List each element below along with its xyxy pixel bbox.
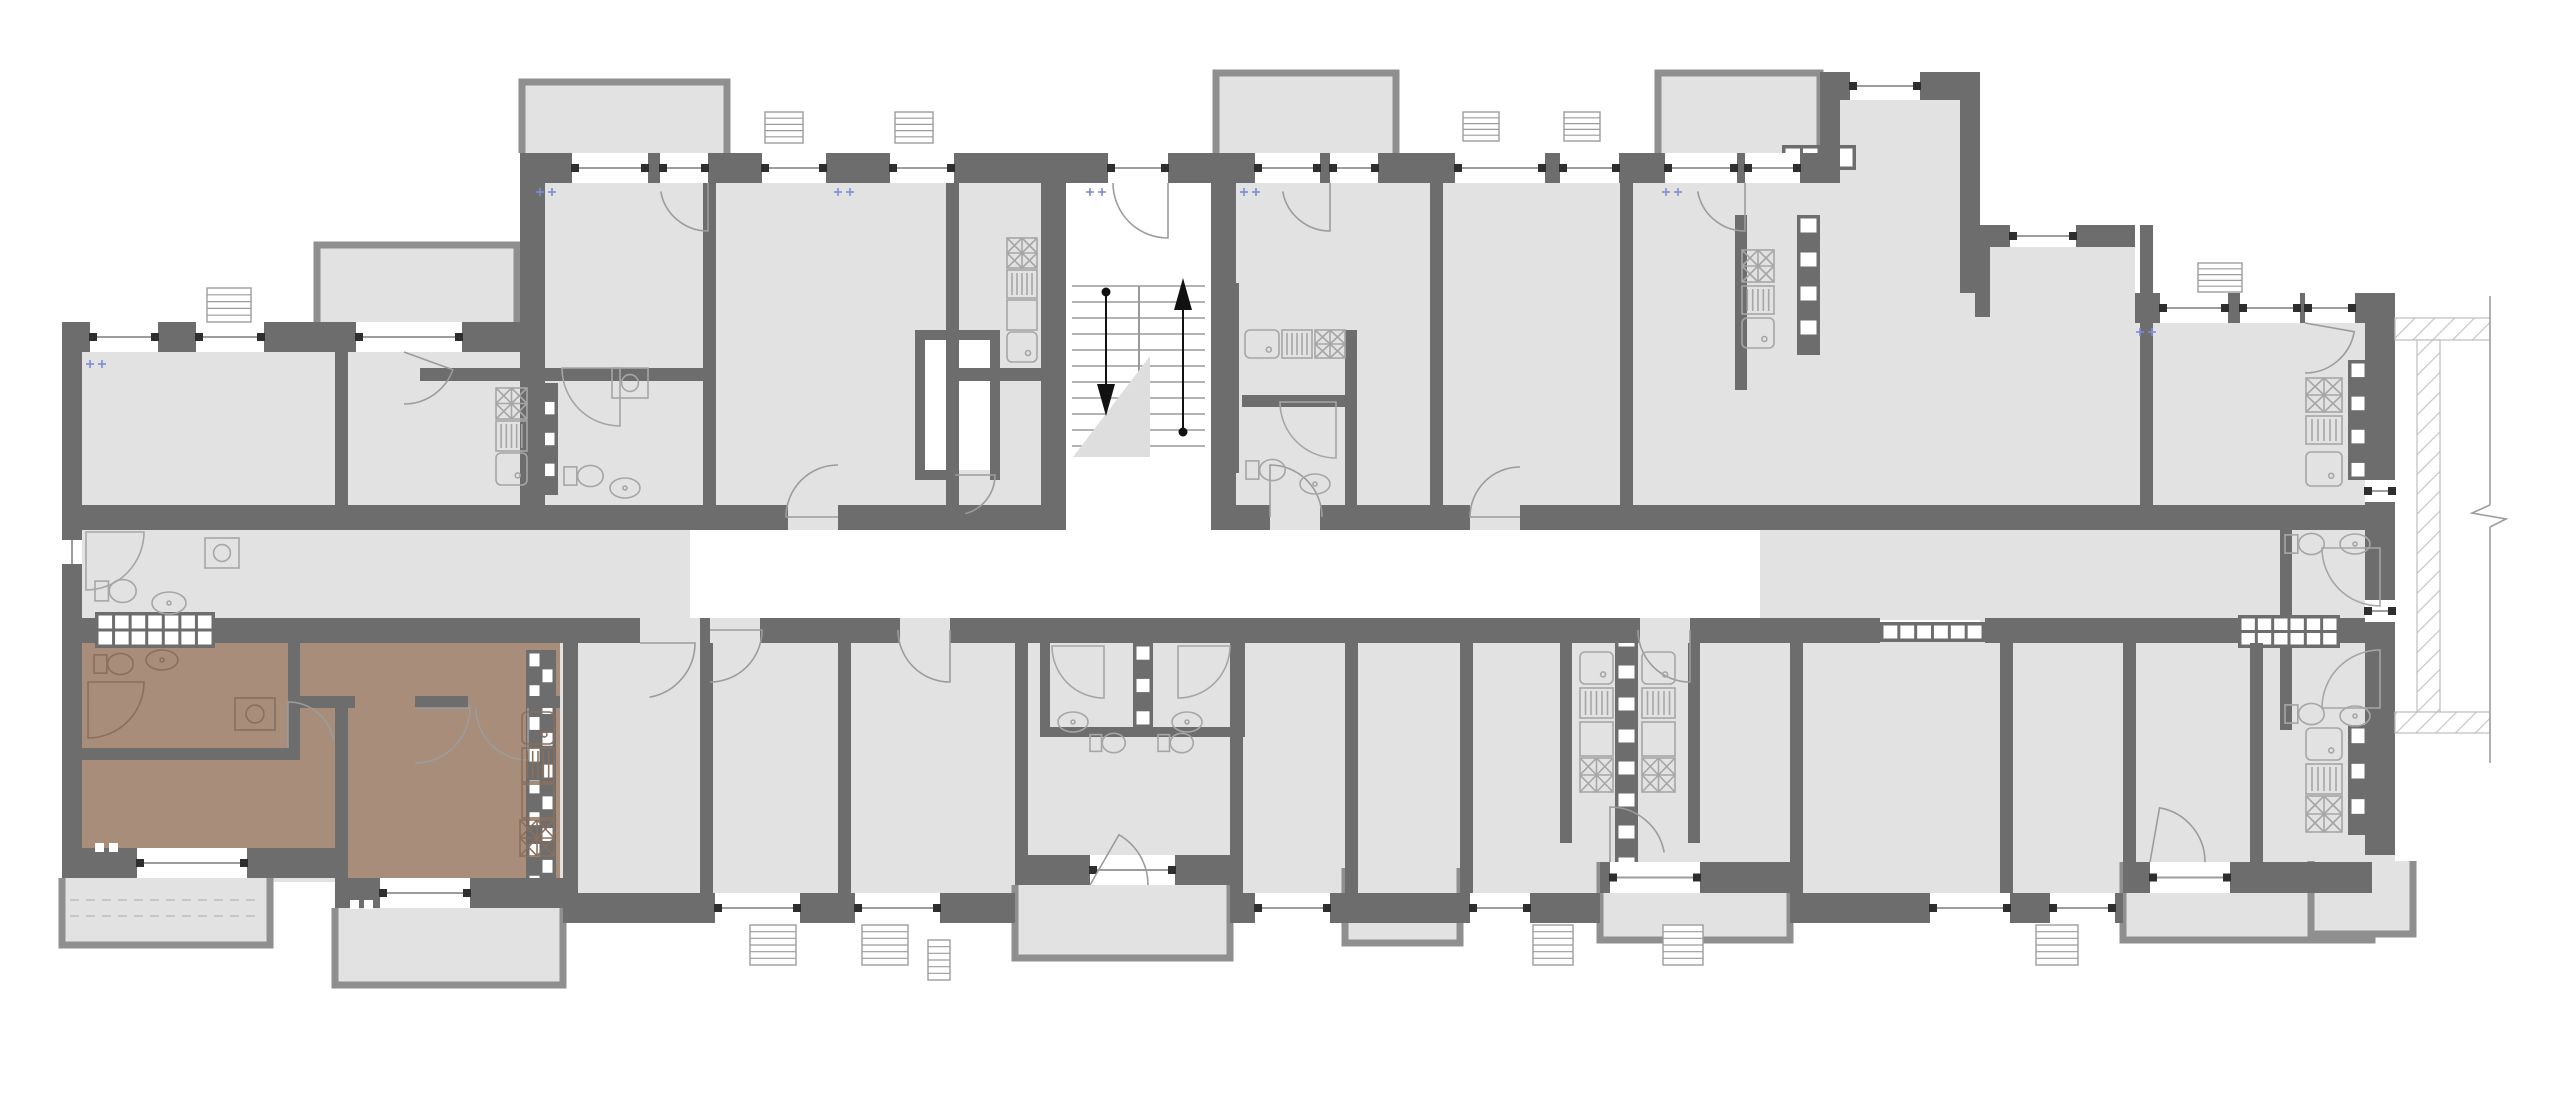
wall-segment	[2228, 293, 2240, 323]
shaft-cell	[2352, 799, 2365, 814]
shaft-cell	[148, 616, 162, 629]
shaft-cell	[115, 632, 129, 645]
balcony	[335, 908, 563, 985]
radiator-icon-outline	[2198, 263, 2242, 292]
adjacent-section-hatch	[2395, 712, 2490, 733]
window-jamb	[1469, 904, 1477, 912]
wall-segment	[1015, 643, 1028, 855]
shaft-cell	[165, 632, 179, 645]
shaft-cell	[2323, 633, 2336, 645]
wall-segment	[2000, 643, 2013, 893]
window-jamb	[2348, 304, 2356, 312]
shaft-cell	[1137, 711, 1150, 724]
balcony	[1658, 73, 1820, 153]
wall-segment	[1345, 643, 1358, 893]
wall-segment	[82, 748, 300, 760]
wall-segment	[1320, 505, 1470, 530]
window-jamb	[701, 164, 709, 172]
radiator-icon	[2198, 263, 2242, 292]
stove-icon	[1007, 238, 1037, 268]
window-jamb	[2003, 904, 2011, 912]
window-jamb	[2388, 607, 2396, 615]
wall-segment	[563, 643, 578, 908]
shaft-cell	[1137, 647, 1150, 660]
wall-segment	[1230, 893, 1255, 923]
window-jamb	[2159, 304, 2167, 312]
window-jamb	[2149, 874, 2157, 882]
wall-segment	[1236, 153, 1255, 183]
window-jamb	[1744, 164, 1752, 172]
stove-icon	[2306, 378, 2342, 412]
shaft-cell	[530, 717, 540, 730]
shaft-cell	[1968, 626, 1982, 639]
wall-segment	[1175, 855, 1230, 885]
wall-segment	[1737, 153, 1745, 183]
shaft-cell	[1917, 626, 1931, 639]
window-jamb	[1849, 82, 1857, 90]
window-jamb	[889, 164, 897, 172]
shaft-cell	[1619, 762, 1635, 775]
radiator-icon-outline	[207, 288, 251, 322]
window-jamb	[819, 164, 827, 172]
wall-segment	[1600, 862, 1610, 893]
window-jamb	[257, 333, 265, 341]
wall-segment	[528, 696, 560, 708]
wall-segment	[708, 153, 762, 183]
wall-segment	[82, 505, 788, 530]
wall-segment	[2280, 530, 2292, 615]
wall-segment	[940, 893, 1015, 923]
shaft-cell	[1801, 219, 1817, 233]
balcony	[1015, 885, 1230, 958]
wall-segment	[563, 893, 715, 923]
stair-dot	[1179, 428, 1188, 437]
shaft-cell	[1801, 253, 1817, 267]
wall-segment	[1735, 215, 1747, 390]
shaft-cell	[545, 464, 555, 476]
radiator-icon-outline	[895, 112, 933, 143]
balcony	[62, 878, 270, 945]
entrance-steps-icon	[1663, 925, 1703, 965]
shaft-cell	[2258, 633, 2271, 645]
wall-segment	[1378, 153, 1455, 183]
wall-segment	[1015, 855, 1090, 885]
wall-segment	[954, 153, 1041, 183]
window-jamb	[355, 333, 363, 341]
shaft-cell	[545, 402, 555, 414]
wall-segment	[838, 505, 1041, 530]
wall-segment	[470, 878, 563, 908]
window-jamb	[1612, 164, 1620, 172]
wall-segment	[1790, 893, 1930, 923]
shaft-cell	[148, 632, 162, 645]
wall-segment	[2280, 648, 2292, 730]
floor-plan	[0, 0, 2560, 1106]
rack-icon	[496, 421, 527, 451]
wall-segment	[1800, 153, 1820, 183]
window-jamb	[151, 333, 159, 341]
window-jamb	[2009, 232, 2017, 240]
wall-segment	[1040, 643, 1050, 733]
wall-segment	[1545, 153, 1560, 183]
shaft-cell	[2307, 633, 2320, 645]
radiator-icon	[1463, 112, 1499, 141]
wall-segment	[2123, 862, 2150, 893]
wall-segment	[247, 848, 335, 878]
shaft-cell	[543, 669, 553, 682]
wall-segment	[1235, 643, 1245, 733]
shaft-cell	[543, 796, 553, 809]
shaft-cell	[1801, 321, 1817, 335]
window-jamb	[714, 904, 722, 912]
stair-dot	[1102, 288, 1111, 297]
shaft-cell	[132, 616, 146, 629]
wall-segment	[2010, 893, 2050, 923]
entrance-steps-icon	[862, 925, 908, 965]
wall-segment	[1530, 893, 1600, 923]
shaft-cell	[2291, 633, 2304, 645]
wall-segment	[1975, 225, 1990, 317]
shaft-cell	[2352, 430, 2365, 444]
window-jamb	[947, 164, 955, 172]
window-jamb	[1313, 164, 1321, 172]
wall-segment	[520, 153, 545, 505]
shaft-cell	[2352, 463, 2365, 477]
wall-segment	[264, 322, 356, 352]
adjacent-section-hatch	[2395, 318, 2490, 340]
shaft-cell	[1951, 626, 1965, 639]
balcony	[522, 82, 727, 153]
stove-icon	[1315, 330, 1345, 358]
entrance-steps-icon	[2036, 925, 2078, 965]
wall-segment	[838, 643, 851, 893]
entrance-steps-icon	[750, 925, 796, 965]
window-jamb	[2293, 304, 2301, 312]
shaft-cell	[181, 616, 195, 629]
window-jamb	[1664, 164, 1672, 172]
shaft-cell	[2323, 619, 2336, 631]
wall-segment	[1330, 893, 1470, 923]
window-jamb	[1168, 866, 1176, 874]
wall-segment	[1619, 153, 1665, 183]
wall-segment	[335, 352, 348, 505]
shaft-cell	[545, 433, 555, 445]
wall-segment	[2355, 293, 2395, 323]
window-jamb	[2364, 607, 2372, 615]
window-jamb	[1161, 164, 1169, 172]
window-jamb	[1929, 904, 1937, 912]
wall-segment	[946, 183, 959, 505]
wall-segment	[1620, 183, 1633, 505]
window-jamb	[136, 859, 144, 867]
wall-segment	[2230, 862, 2372, 893]
shaft-cell	[1619, 730, 1635, 743]
shaft-cell	[1619, 666, 1635, 679]
window-jamb	[2364, 487, 2372, 495]
window-jamb	[379, 889, 387, 897]
wall-segment	[1985, 618, 2238, 643]
shaft-cell	[1801, 287, 1817, 301]
wall-segment	[62, 848, 137, 878]
section-break-zigzag	[2472, 505, 2506, 527]
entrance-steps-icon	[928, 940, 950, 980]
balcony	[1216, 73, 1396, 153]
wall-segment	[915, 330, 1000, 340]
wall-segment	[915, 330, 925, 480]
wall-segment	[1690, 618, 1880, 643]
stove-icon	[1742, 250, 1774, 282]
wall-segment	[826, 153, 890, 183]
vent-mark-square	[350, 900, 359, 909]
stove-icon	[496, 388, 527, 419]
shaft-cell	[1137, 679, 1150, 692]
stove-icon	[1580, 758, 1613, 792]
wall-segment	[1790, 643, 1803, 893]
window-jamb	[1559, 164, 1567, 172]
shaft-cell	[1619, 826, 1635, 839]
wall-segment	[1242, 395, 1345, 407]
window-jamb	[2049, 904, 2057, 912]
window-jamb	[2069, 232, 2077, 240]
wall-segment	[700, 618, 710, 643]
shaft-cell	[2258, 619, 2271, 631]
window-jamb	[2239, 304, 2247, 312]
shaft-cell	[115, 616, 129, 629]
radiator-icon	[1564, 112, 1600, 141]
adjacent-section-hatch	[2417, 340, 2440, 712]
shaft-cell	[1838, 149, 1853, 167]
shaft-cell	[1619, 698, 1635, 711]
wall-segment	[335, 696, 348, 878]
stove-icon	[2306, 796, 2342, 832]
window-jamb	[1913, 82, 1921, 90]
window-jamb	[571, 164, 579, 172]
shaft-cell	[530, 654, 540, 667]
radiator-icon	[895, 112, 933, 143]
window-jamb	[793, 904, 801, 912]
shaft-cell	[2274, 619, 2287, 631]
radiator-icon-outline	[765, 112, 803, 143]
radiator-icon-outline	[1463, 112, 1499, 141]
window-jamb	[1609, 874, 1617, 882]
window-jamb	[933, 904, 941, 912]
shaft-cell	[99, 632, 113, 645]
shaft-cell	[181, 632, 195, 645]
wall-segment	[1168, 153, 1211, 183]
shaft-cell	[1884, 626, 1898, 639]
wall-segment	[1520, 505, 2395, 530]
window-jamb	[1371, 164, 1379, 172]
window-jamb	[1454, 164, 1462, 172]
wall-segment	[1211, 153, 1236, 530]
wall-segment	[1560, 643, 1572, 843]
wall-segment	[1345, 330, 1357, 505]
wall-segment	[62, 322, 82, 848]
window-jamb	[1089, 866, 1097, 874]
rack-icon	[1642, 688, 1675, 718]
shaft-cell	[2352, 364, 2365, 378]
wall-segment	[648, 153, 660, 183]
balcony	[317, 245, 517, 322]
shaft-cell	[2291, 619, 2304, 631]
floor-plan-svg-host	[0, 0, 2560, 1106]
window-jamb	[455, 333, 463, 341]
window-jamb	[2223, 874, 2231, 882]
window-jamb	[2108, 904, 2116, 912]
window-jamb	[659, 164, 667, 172]
shaft-cell	[1934, 626, 1948, 639]
stove-icon	[1642, 758, 1675, 792]
rack-icon	[2306, 764, 2342, 794]
shaft-cell	[2352, 764, 2365, 779]
wall-segment	[1430, 183, 1443, 505]
shaft-cell	[198, 632, 212, 645]
wall-segment	[2140, 225, 2153, 505]
wall-segment	[700, 643, 713, 893]
window-jamb	[761, 164, 769, 172]
wall-segment	[2076, 225, 2135, 247]
window-jamb	[89, 333, 97, 341]
wall-segment	[1066, 153, 1108, 183]
shaft-cell	[165, 616, 179, 629]
wall-segment	[1700, 862, 1790, 893]
wall-segment	[1820, 72, 1840, 183]
wall-segment	[950, 618, 1640, 643]
shaft-cell	[2352, 397, 2365, 411]
rack-icon	[1742, 286, 1774, 314]
window-jamb	[1254, 904, 1262, 912]
vent-mark-square	[95, 843, 104, 852]
window-jamb	[641, 164, 649, 172]
window-jamb	[1693, 874, 1701, 882]
window-jamb	[2388, 487, 2396, 495]
shaft-cell	[2307, 619, 2320, 631]
window-jamb	[1538, 164, 1546, 172]
wall-segment	[82, 618, 95, 643]
shaft-cell	[132, 632, 146, 645]
wall-segment	[1460, 643, 1473, 893]
shaft-cell	[2242, 633, 2255, 645]
shaft-cell	[198, 616, 212, 629]
window-jamb	[1730, 164, 1738, 172]
vent-mark-square	[109, 843, 118, 852]
floor-plan-canvas	[0, 0, 2560, 1106]
window-jamb	[1323, 904, 1331, 912]
wall-segment	[545, 153, 572, 183]
wall-segment	[158, 322, 196, 352]
wall-segment	[1041, 153, 1066, 530]
wall-segment	[2115, 893, 2123, 923]
window-jamb	[1254, 164, 1262, 172]
wall-segment	[800, 893, 855, 923]
rack-icon	[2306, 416, 2342, 444]
corridor-area	[690, 530, 1760, 618]
shaft-cell	[543, 860, 553, 873]
layer-hatch	[2395, 296, 2506, 763]
vent-mark-square	[364, 900, 373, 909]
radiator-icon-outline	[1564, 112, 1600, 141]
wall-segment	[415, 696, 468, 708]
wall-segment	[2123, 643, 2136, 893]
rack-icon	[1282, 330, 1312, 358]
wall-segment	[1236, 505, 1270, 530]
wall-segment	[1320, 153, 1330, 183]
window-jamb	[1523, 904, 1531, 912]
shaft-cell	[1900, 626, 1914, 639]
wall-segment	[915, 470, 955, 480]
wall-segment	[2250, 643, 2263, 893]
window-jamb	[2221, 304, 2229, 312]
rack-icon	[1580, 688, 1613, 718]
wall-segment	[990, 330, 1000, 480]
stove-icon	[520, 820, 554, 856]
window-jamb	[1793, 164, 1801, 172]
entrance-steps-icon	[1533, 925, 1573, 965]
window-jamb	[463, 889, 471, 897]
rack-icon	[1007, 270, 1037, 298]
shaft-cell	[2352, 729, 2365, 744]
window-jamb	[240, 859, 248, 867]
window-jamb	[2304, 304, 2312, 312]
radiator-icon	[207, 288, 251, 322]
rack-icon	[522, 748, 554, 782]
radiator-icon	[765, 112, 803, 143]
wall-segment	[1040, 727, 1153, 737]
window-jamb	[195, 333, 203, 341]
window-jamb	[1107, 164, 1115, 172]
wall-segment	[215, 618, 640, 643]
window-jamb	[854, 904, 862, 912]
shaft-cell	[2274, 633, 2287, 645]
shaft-cell	[99, 616, 113, 629]
window-jamb	[1329, 164, 1337, 172]
wall-segment	[760, 618, 900, 643]
shaft-cell	[1619, 794, 1635, 807]
shaft-cell	[2242, 619, 2255, 631]
